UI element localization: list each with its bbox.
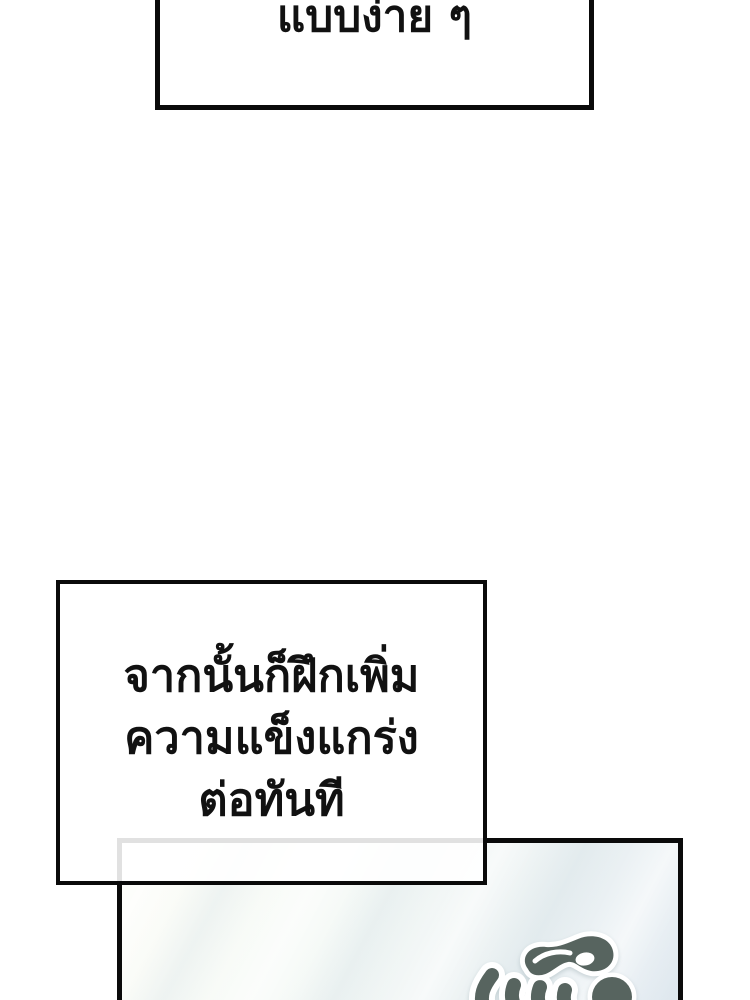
speech-bubble-middle-line-2: ความแข็งแกร่ง — [60, 707, 483, 769]
thai-sfx-lettering — [432, 893, 683, 1000]
speech-bubble-top: แบบง่าย ๆ — [155, 0, 594, 110]
sfx-ball-glyph — [592, 977, 632, 1000]
speech-bubble-middle: จากนั้นก็ฝึกเพิ่ม ความแข็งแกร่ง ต่อทันที — [56, 580, 487, 885]
comic-page: แบบง่าย ๆ จากนั้นก็ฝึกเพิ่ม ความแข็งแกร่… — [0, 0, 750, 1000]
speech-bubble-middle-line-1: จากนั้นก็ฝึกเพิ่ม — [60, 645, 483, 707]
speech-bubble-middle-line-3: ต่อทันที — [60, 769, 483, 831]
speech-bubble-top-text: แบบง่าย ๆ — [160, 0, 589, 43]
sfx-swirl-glyph — [525, 936, 614, 975]
